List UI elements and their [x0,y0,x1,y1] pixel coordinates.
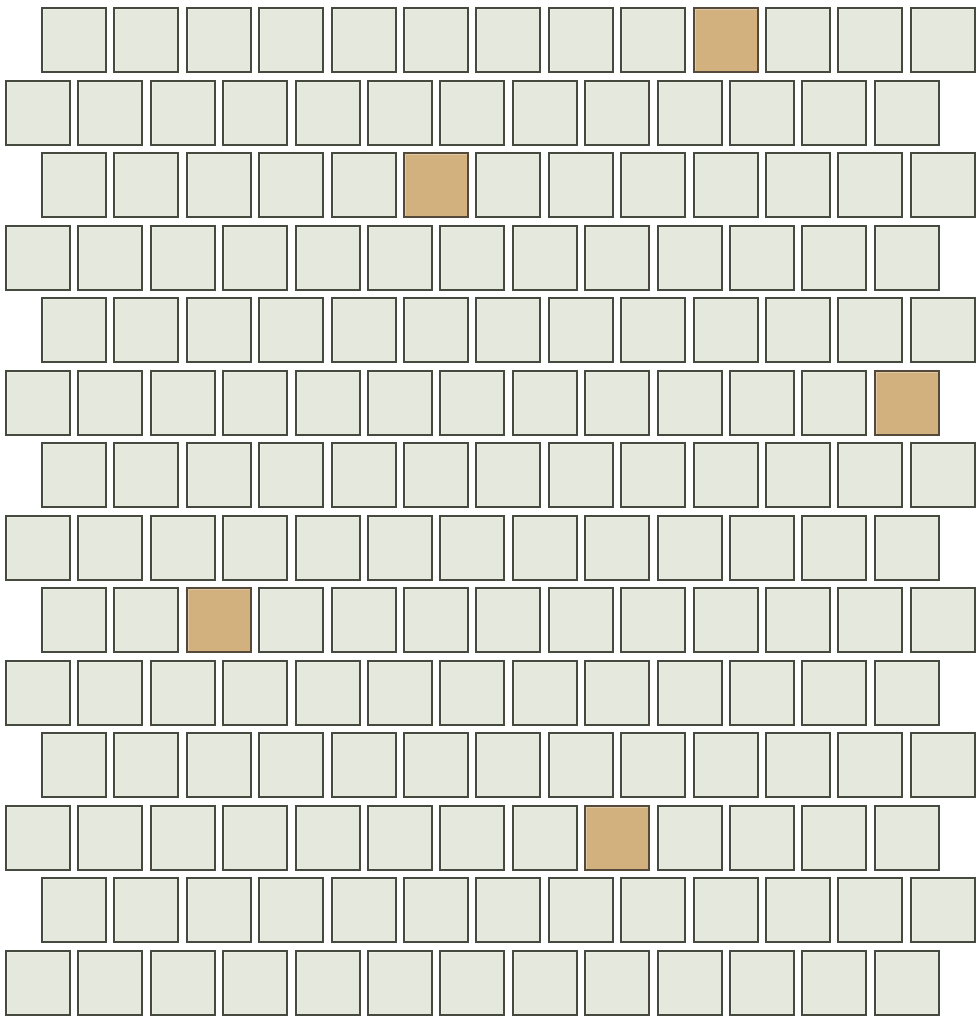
tile [5,950,71,1016]
tile [331,297,397,363]
accent-tile [403,152,469,218]
tile [584,80,650,146]
tile [113,732,179,798]
tile [765,877,831,943]
tile [331,152,397,218]
tile [5,805,71,871]
tile [837,297,903,363]
tile [620,732,686,798]
tile [765,442,831,508]
tile [729,950,795,1016]
tile [5,80,71,146]
tile [512,660,578,726]
tile [512,80,578,146]
tile [222,370,288,436]
tile [475,732,541,798]
tile [620,877,686,943]
tile [331,442,397,508]
tile [512,370,578,436]
tile [222,225,288,291]
tile [910,7,976,73]
tile [910,152,976,218]
tile [765,587,831,653]
tile [620,442,686,508]
tile [258,7,324,73]
tile [729,370,795,436]
tile [548,587,614,653]
tile [295,515,361,581]
tile [620,7,686,73]
tile [439,80,505,146]
tile [801,80,867,146]
tile [367,515,433,581]
tile [657,515,723,581]
tile [77,660,143,726]
tile [548,442,614,508]
tile [367,660,433,726]
tile [367,805,433,871]
tile [874,950,940,1016]
tile [295,370,361,436]
tile [113,152,179,218]
tile [113,877,179,943]
tile [837,152,903,218]
accent-tile [584,805,650,871]
tile [801,370,867,436]
tile [258,587,324,653]
tile [729,515,795,581]
tile [186,442,252,508]
tile [222,515,288,581]
tile [331,587,397,653]
tile [801,515,867,581]
tile [403,442,469,508]
accent-tile [186,587,252,653]
tile [186,152,252,218]
tile [475,7,541,73]
tile [113,297,179,363]
tile [403,877,469,943]
tile [512,515,578,581]
tile [910,877,976,943]
tile [693,297,759,363]
tile [620,587,686,653]
tile [222,660,288,726]
tile [620,152,686,218]
tile [150,950,216,1016]
tile [222,805,288,871]
tile [765,297,831,363]
tile [548,877,614,943]
tile [186,7,252,73]
tile [113,587,179,653]
tile [620,297,686,363]
tile [222,80,288,146]
tile [874,805,940,871]
tile [150,660,216,726]
tile [77,950,143,1016]
tile [439,225,505,291]
tile [367,225,433,291]
tile [475,442,541,508]
tile [186,297,252,363]
tile [584,950,650,1016]
tile [41,442,107,508]
tile [837,442,903,508]
tile [5,370,71,436]
tile [910,732,976,798]
tile [657,225,723,291]
tile [150,370,216,436]
tile [584,660,650,726]
tile [439,370,505,436]
tile [657,950,723,1016]
tile [41,7,107,73]
tile [41,297,107,363]
tile [258,152,324,218]
tile [512,225,578,291]
tile [41,877,107,943]
tile [295,225,361,291]
tile [150,225,216,291]
tile [874,225,940,291]
tile [475,877,541,943]
tile [77,225,143,291]
tile [295,660,361,726]
tile [331,7,397,73]
tile [837,587,903,653]
tile [5,660,71,726]
tile [548,297,614,363]
tile [584,515,650,581]
tile [657,660,723,726]
tile [765,732,831,798]
tile [874,515,940,581]
tile [693,587,759,653]
tile [295,80,361,146]
tile [765,152,831,218]
tile [77,805,143,871]
tile [693,442,759,508]
tile [113,442,179,508]
tile [367,80,433,146]
tile [403,297,469,363]
tile [258,732,324,798]
tile [475,297,541,363]
tile [403,587,469,653]
tile [475,587,541,653]
tile [77,80,143,146]
accent-tile [693,7,759,73]
tile [439,515,505,581]
tile [439,950,505,1016]
tile [512,805,578,871]
tile [693,732,759,798]
tile [801,660,867,726]
tile [5,515,71,581]
tile [801,805,867,871]
tile [729,225,795,291]
tile [729,805,795,871]
tile [801,225,867,291]
accent-tile [874,370,940,436]
tile [475,152,541,218]
tile [41,152,107,218]
tile [837,877,903,943]
tile [258,877,324,943]
tile [77,370,143,436]
tile [584,370,650,436]
tile [874,80,940,146]
tile [765,7,831,73]
tile [77,515,143,581]
tile [548,152,614,218]
tile [258,297,324,363]
tile [548,732,614,798]
tile [367,950,433,1016]
tile [295,950,361,1016]
tile [439,805,505,871]
tile [439,660,505,726]
tile [874,660,940,726]
tile [295,805,361,871]
tile [910,297,976,363]
tile [657,805,723,871]
tile [41,732,107,798]
tile [5,225,71,291]
tile [693,877,759,943]
tile [113,7,179,73]
tile [258,442,324,508]
mosaic-tile-sheet [0,0,980,1024]
tile [729,80,795,146]
tile [150,515,216,581]
tile [512,950,578,1016]
tile [367,370,433,436]
tile [548,7,614,73]
tile [910,587,976,653]
tile [150,805,216,871]
tile [150,80,216,146]
tile [41,587,107,653]
tile [657,80,723,146]
tile [837,7,903,73]
tile [186,732,252,798]
tile [837,732,903,798]
tile [657,370,723,436]
tile [186,877,252,943]
tile [801,950,867,1016]
tile [729,660,795,726]
tile [584,225,650,291]
tile [403,7,469,73]
tile [910,442,976,508]
tile [331,877,397,943]
tile [693,152,759,218]
tile [403,732,469,798]
tile [222,950,288,1016]
tile [331,732,397,798]
